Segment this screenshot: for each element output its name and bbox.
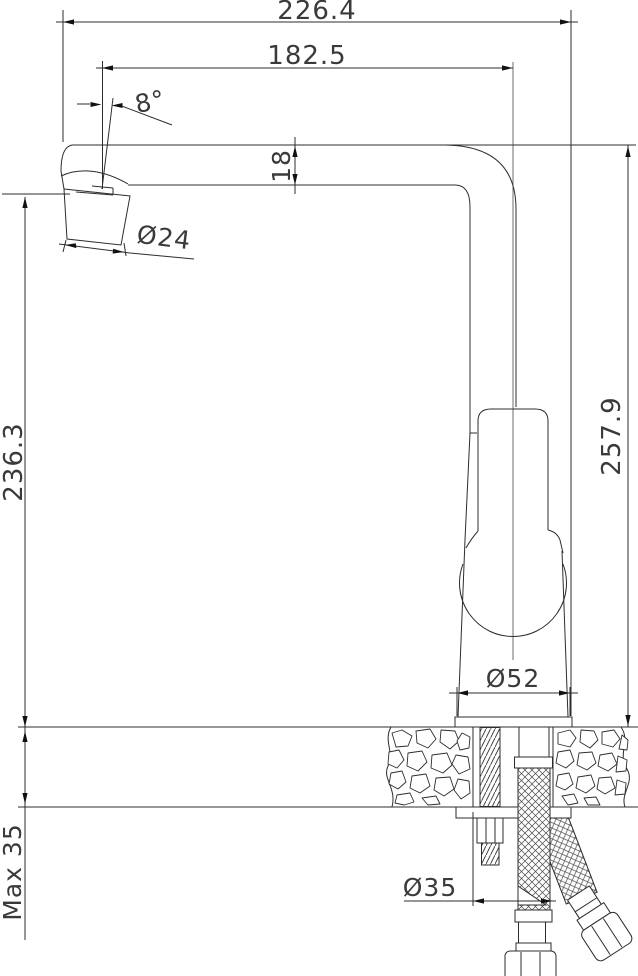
drawing-canvas: 226.4 182.5 8° 18 Ø24 236.3 Max 35 bbox=[0, 0, 638, 976]
dim-spout-angle: 8° bbox=[77, 84, 172, 189]
hose-collar-3 bbox=[516, 943, 551, 951]
faucet-dimension-drawing: 226.4 182.5 8° 18 Ø24 236.3 Max 35 bbox=[0, 0, 638, 976]
dim-label-spout-tube-height: 18 bbox=[267, 149, 296, 183]
handle-left-join bbox=[466, 531, 478, 548]
body-left-edge bbox=[458, 207, 470, 717]
aerator-housing bbox=[61, 171, 128, 184]
aerator bbox=[64, 189, 130, 245]
base-flange bbox=[455, 717, 572, 727]
hose-top bbox=[519, 727, 549, 757]
dim-max-counter-thickness: Max 35 bbox=[0, 731, 28, 921]
supply-hose-vertical bbox=[505, 727, 556, 976]
dim-label-spout-angle: 8° bbox=[132, 84, 168, 119]
handle-tip bbox=[548, 530, 563, 553]
elbow-outer bbox=[445, 145, 516, 407]
stone-break-left bbox=[387, 727, 393, 807]
granite-texture-left bbox=[388, 729, 470, 805]
threaded-stud bbox=[480, 728, 500, 807]
dim-label-overall-width: 226.4 bbox=[277, 0, 356, 26]
dim-spout-reach: 182.5 bbox=[96, 41, 513, 189]
dim-overall-width: 226.4 bbox=[56, 0, 578, 716]
hose-collar-2 bbox=[515, 910, 552, 922]
granite-texture-right bbox=[556, 730, 628, 805]
dim-label-aerator-diameter: Ø24 bbox=[135, 220, 193, 255]
dim-label-tip-height: 236.3 bbox=[0, 422, 29, 501]
hose-nut bbox=[505, 951, 556, 976]
elbow-inner bbox=[455, 185, 470, 207]
dim-label-overall-height: 257.9 bbox=[597, 396, 627, 475]
dim-label-spout-reach: 182.5 bbox=[267, 41, 346, 71]
faucet-outline bbox=[61, 62, 636, 727]
hose-fitting bbox=[519, 922, 546, 943]
dim-label-max-counter-thickness: Max 35 bbox=[0, 823, 27, 920]
dim-base-diameter: Ø52 bbox=[449, 664, 578, 716]
hose-collar bbox=[515, 757, 553, 768]
stud-nut bbox=[477, 818, 503, 843]
dim-overall-height: 257.9 bbox=[597, 145, 631, 727]
spout-tip-cap bbox=[61, 145, 72, 189]
stud-end bbox=[482, 843, 500, 865]
dim-label-hole-diameter: Ø35 bbox=[403, 873, 458, 902]
dim-label-base-diameter: Ø52 bbox=[486, 664, 541, 693]
